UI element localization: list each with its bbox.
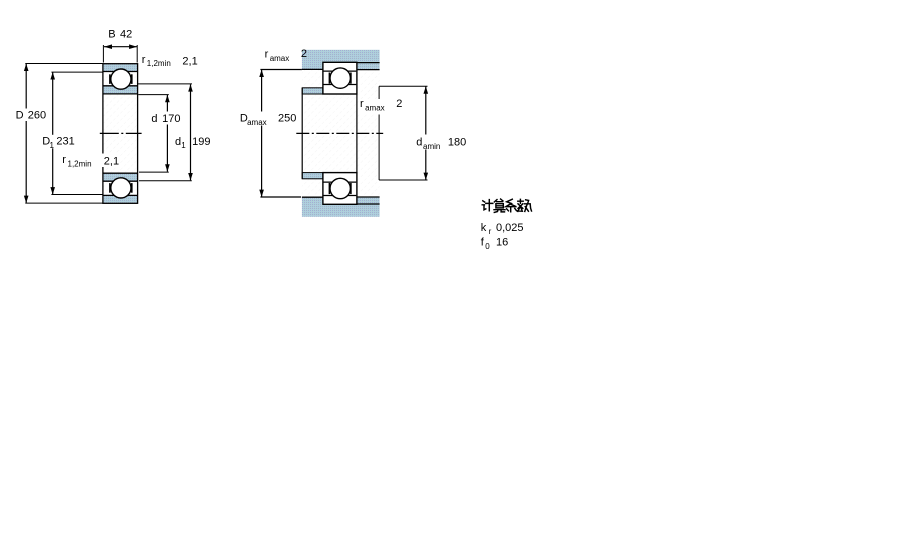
- svg-text:250: 250: [278, 112, 296, 124]
- svg-text:2: 2: [396, 98, 402, 110]
- svg-text:170: 170: [162, 113, 180, 125]
- svg-text:2,1: 2,1: [182, 56, 197, 68]
- svg-text:D: D: [16, 110, 24, 122]
- svg-text:amax: amax: [365, 103, 385, 112]
- svg-text:amax: amax: [247, 118, 267, 127]
- svg-text:1,2min: 1,2min: [68, 159, 92, 168]
- svg-text:260: 260: [28, 110, 46, 122]
- svg-text:0,025: 0,025: [496, 222, 524, 234]
- svg-text:1: 1: [50, 141, 55, 150]
- svg-text:r: r: [489, 227, 492, 236]
- svg-text:d: d: [175, 136, 181, 148]
- svg-text:231: 231: [56, 136, 74, 148]
- svg-text:1,2min: 1,2min: [147, 59, 171, 68]
- svg-text:0: 0: [485, 242, 490, 251]
- svg-text:r: r: [62, 154, 66, 166]
- svg-text:199: 199: [192, 136, 210, 148]
- svg-text:d: d: [151, 113, 157, 125]
- svg-text:d: d: [416, 137, 422, 149]
- svg-text:2: 2: [301, 48, 307, 60]
- svg-text:r: r: [360, 98, 364, 110]
- svg-text:r: r: [142, 54, 146, 66]
- svg-text:16: 16: [496, 237, 508, 249]
- svg-text:42: 42: [120, 28, 132, 40]
- svg-text:r: r: [265, 49, 269, 61]
- svg-text:B: B: [108, 28, 115, 40]
- svg-text:amin: amin: [423, 142, 440, 151]
- svg-text:f: f: [481, 237, 485, 249]
- svg-text:1: 1: [181, 141, 186, 150]
- svg-text:k: k: [481, 222, 487, 234]
- svg-text:amax: amax: [270, 54, 290, 63]
- svg-text:2,1: 2,1: [104, 156, 119, 168]
- svg-text:180: 180: [448, 137, 466, 149]
